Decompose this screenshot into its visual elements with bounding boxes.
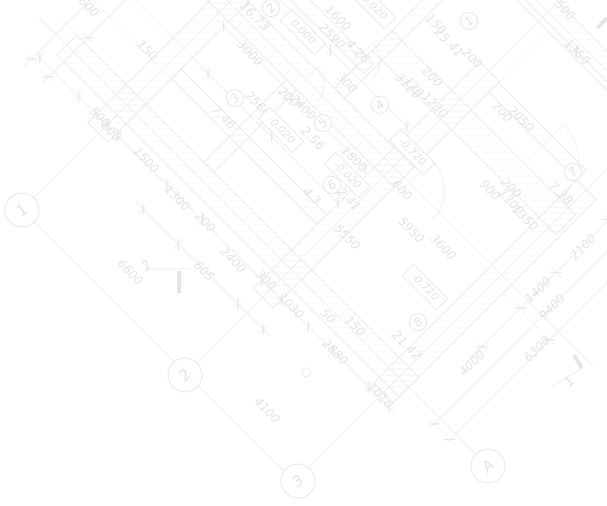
dimension-label: 4000: [456, 347, 488, 379]
dimension-label: 6300: [521, 333, 553, 365]
blueprint-canvas: 2600150500200150013006600410030002560200…: [0, 0, 607, 506]
dimension-label: 1300: [161, 182, 193, 214]
section-flag: [597, 18, 607, 28]
dimension-label: 4100: [251, 394, 283, 426]
dimension-label: 5950: [395, 214, 427, 246]
extension-line: [409, 387, 459, 437]
dimension-label: 3600: [427, 231, 459, 263]
elevation-mark: -0.020: [350, 0, 395, 29]
elevation-mark: -0.720: [402, 264, 447, 309]
room-area: 25.41: [431, 24, 467, 60]
floor-plan-drawing: 2600150500200150013006600410030002560200…: [0, 0, 607, 506]
dimension-label: 605: [191, 258, 217, 284]
dim-tick: [125, 0, 136, 1]
dimension-label: 2100: [567, 231, 599, 263]
dimension-label: 2600: [70, 0, 102, 20]
plan-linework: [0, 0, 607, 506]
point-marker: [300, 366, 313, 379]
section-flag: [574, 355, 582, 368]
dimension-label: 2400: [217, 244, 249, 276]
section-marker-number: 1: [562, 374, 578, 390]
section-marker-number: 2: [139, 258, 155, 274]
